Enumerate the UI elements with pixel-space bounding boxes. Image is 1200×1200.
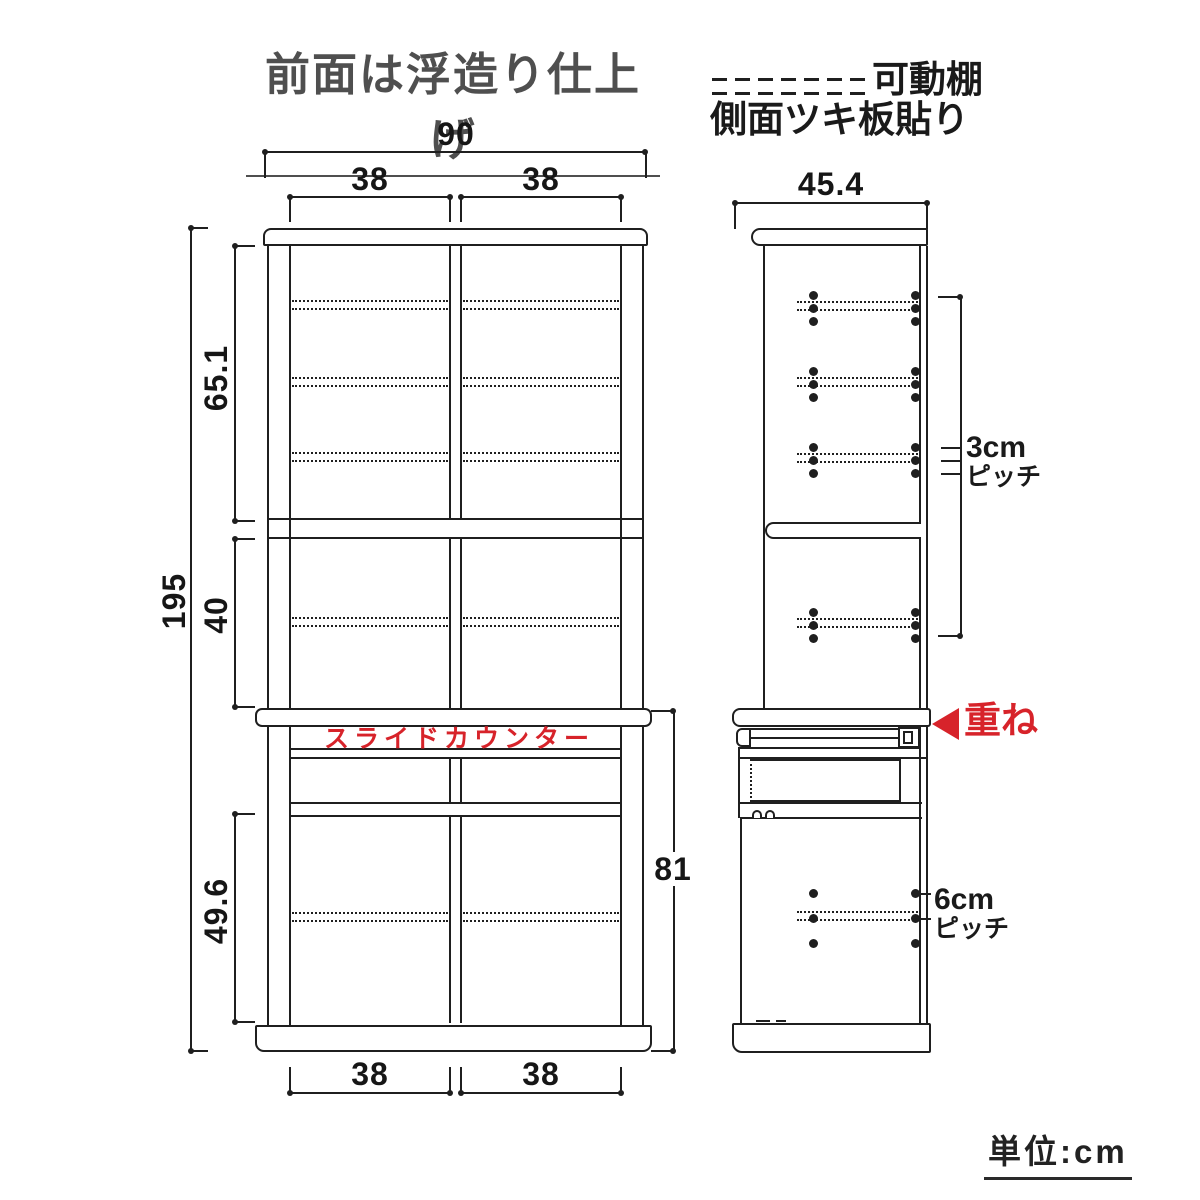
dim-end-dot (232, 1019, 238, 1025)
pitch-tick (920, 918, 931, 920)
dim-end-dot (287, 1090, 293, 1096)
dim-depth-total-label: 45.4 (751, 167, 911, 201)
dim-end-dot (232, 811, 238, 817)
center-divider-line (460, 246, 462, 518)
front-finish-title: 前面は浮造り仕上げ (246, 38, 660, 177)
dim-end-dot (670, 708, 676, 714)
movable-shelf-dotted-line (463, 308, 619, 310)
dim-width-right-bottom-label: 38 (505, 1057, 577, 1091)
front-face-outer-line (926, 246, 928, 1023)
movable-shelf-dotted-line (463, 460, 619, 462)
dim-end-dot (957, 633, 963, 639)
dim-tick (645, 151, 647, 178)
shelf-position-dotted-line (797, 385, 918, 387)
pitch-tick (941, 473, 960, 475)
legend-side-veneer-label: 側面ツキ板貼り (710, 100, 969, 140)
shelf-position-dotted-line (797, 919, 918, 921)
center-divider-line (460, 538, 462, 708)
dim-lower-section-label: 49.6 (199, 856, 233, 966)
stack-arrow-icon (932, 708, 959, 740)
left-wall-outer-line (267, 246, 269, 1025)
movable-shelf-dotted-line (292, 452, 448, 454)
pin-hole (809, 939, 818, 948)
shelf-position-dotted-line (797, 309, 918, 311)
right-wall-inner-line (620, 246, 622, 1025)
stack-note-label: 重ね (964, 701, 1038, 741)
dim-line (234, 813, 236, 1023)
dash-icon (712, 78, 727, 95)
dash-icon (827, 78, 842, 95)
center-divider-line (449, 246, 451, 518)
movable-shelf-dotted-line (292, 308, 448, 310)
center-divider-line (460, 815, 462, 1023)
dim-width-left-top-label: 38 (334, 162, 406, 196)
pin-hole (809, 469, 818, 478)
groove-notch (765, 810, 775, 818)
pitch-upper-value-label: 3cm (966, 432, 1026, 464)
dim-end-dot (642, 149, 648, 155)
pin-hole (911, 393, 920, 402)
counter-shelf-line (738, 747, 921, 749)
movable-shelf-dotted-line (463, 377, 619, 379)
dim-tick (449, 1067, 451, 1092)
pin-hole (809, 317, 818, 326)
right-wall-outer-line (642, 246, 644, 1025)
dim-end-dot (458, 194, 464, 200)
pin-hole (809, 291, 818, 300)
dim-end-dot (447, 194, 453, 200)
dim-end-dot (924, 200, 930, 206)
dim-tick (264, 151, 266, 178)
dim-end-dot (232, 704, 238, 710)
top-board (263, 228, 648, 246)
pitch-lower-value-label: 6cm (934, 884, 994, 916)
shelf-position-dotted-line (797, 461, 918, 463)
dim-width-right-top-label: 38 (505, 162, 577, 196)
dim-width-left-bottom-label: 38 (334, 1057, 406, 1091)
center-divider-line (460, 758, 462, 802)
dim-width-total-label: 90 (414, 117, 498, 151)
back-panel-line (738, 747, 740, 818)
movable-shelf-dotted-line (292, 625, 448, 627)
dim-line (234, 538, 236, 708)
movable-shelf-dotted-line (292, 385, 448, 387)
movable-shelf-dotted-line (463, 617, 619, 619)
pin-hole (911, 443, 920, 452)
fixed-shelf-side (765, 522, 921, 539)
movable-shelf-dotted-line (292, 617, 448, 619)
dim-line (460, 1092, 622, 1094)
dim-upper-section-label: 65.1 (199, 328, 233, 428)
pin-hole (911, 939, 920, 948)
center-divider-line (449, 538, 451, 708)
movable-shelf-dotted-line (292, 377, 448, 379)
dash-icon (804, 78, 819, 95)
dim-end-dot (232, 518, 238, 524)
base-board (255, 1025, 652, 1052)
base-dash (756, 1020, 770, 1022)
dim-end-dot (232, 536, 238, 542)
dim-end-dot (670, 1048, 676, 1054)
dim-tick (460, 1067, 462, 1092)
dim-tick (620, 1067, 622, 1092)
rail-line (289, 815, 622, 817)
shelf-position-dotted-line (797, 453, 918, 455)
base-board-side (732, 1023, 931, 1053)
dim-line (234, 245, 236, 522)
pitch-tick (920, 893, 931, 895)
shelf-position-dotted-line (797, 911, 918, 913)
dim-end-dot (232, 243, 238, 249)
legend-movable-shelf-label: 可動棚 (872, 60, 983, 100)
dim-end-dot (262, 149, 268, 155)
shelf-position-dotted-line (797, 377, 918, 379)
pin-hole (911, 291, 920, 300)
top-board-side (751, 228, 928, 246)
dim-line (734, 202, 928, 204)
slide-rail-line (751, 737, 899, 739)
groove-notch (752, 810, 762, 818)
pin-hole (809, 608, 818, 617)
pitch-upper-unit-label: ピッチ (966, 464, 1041, 491)
dim-end-dot (618, 1090, 624, 1096)
pin-hole (809, 889, 818, 898)
lower-top-line (740, 802, 922, 804)
movable-shelf-dotted-line (292, 300, 448, 302)
pin-hole (911, 469, 920, 478)
movable-shelf-dotted-line (292, 460, 448, 462)
dim-end-dot (447, 1090, 453, 1096)
dim-end-dot (618, 194, 624, 200)
base-dash (776, 1020, 786, 1022)
movable-shelf-dotted-line (463, 625, 619, 627)
pitch-lower-unit-label: ピッチ (934, 916, 1009, 943)
counter-board-side (732, 708, 931, 727)
pin-hole (911, 608, 920, 617)
back-panel-line (763, 246, 765, 708)
diagram-canvas: 前面は浮造り仕上げ 可動棚 側面ツキ板貼り (0, 0, 1200, 1200)
unit-note: 単位:cm (984, 1134, 1132, 1180)
dim-line (289, 1092, 451, 1094)
dim-tick (734, 202, 736, 229)
pin-hole (911, 367, 920, 376)
drawer-box-side (750, 759, 901, 802)
dim-line (960, 296, 962, 637)
dash-icon (850, 78, 865, 95)
fixed-shelf-line (267, 537, 644, 539)
pitch-tick (941, 447, 960, 449)
shelf-position-dotted-line (797, 626, 918, 628)
pin-hole (809, 367, 818, 376)
movable-shelf-dotted-line (463, 452, 619, 454)
dim-middle-section-label: 40 (199, 580, 233, 650)
movable-shelf-dotted-line (463, 912, 619, 914)
pin-hole (809, 393, 818, 402)
dash-icon (758, 78, 773, 95)
dim-lower-unit-height-label: 81 (649, 852, 697, 886)
dash-icon (781, 78, 796, 95)
center-divider-line (449, 758, 451, 802)
back-panel-line (740, 818, 742, 1023)
rail-line (289, 757, 622, 759)
left-wall-inner-line (289, 246, 291, 1025)
movable-shelf-dotted-line (463, 300, 619, 302)
rail-line (289, 802, 622, 804)
dim-tick (926, 202, 928, 229)
pin-hole (911, 889, 920, 898)
slide-rail-line (751, 728, 899, 730)
front-face-inner-line (919, 246, 921, 1023)
shelf-position-dotted-line (797, 301, 918, 303)
dim-end-dot (732, 200, 738, 206)
pin-hole (809, 634, 818, 643)
center-divider-line (449, 815, 451, 1023)
pin-hole (809, 443, 818, 452)
dim-tick (289, 1067, 291, 1092)
slide-rail-bracket-inner (903, 731, 913, 744)
movable-shelf-dotted-line (292, 920, 448, 922)
movable-shelf-dotted-line (463, 920, 619, 922)
slide-counter-label: スライドカウンター (299, 726, 619, 753)
pin-hole (911, 634, 920, 643)
pin-hole (911, 317, 920, 326)
dim-end-dot (188, 225, 194, 231)
fixed-shelf-line (267, 518, 644, 520)
movable-shelf-dashes-icon (712, 78, 865, 95)
slide-rail-end (736, 728, 751, 747)
movable-shelf-dotted-line (463, 385, 619, 387)
dash-icon (735, 78, 750, 95)
movable-shelf-dotted-line (292, 912, 448, 914)
pitch-tick (941, 460, 960, 462)
shelf-position-dotted-line (797, 618, 918, 620)
dim-height-total-label: 195 (157, 556, 191, 646)
dim-end-dot (188, 1048, 194, 1054)
dim-end-dot (957, 294, 963, 300)
dim-end-dot (458, 1090, 464, 1096)
dim-end-dot (287, 194, 293, 200)
